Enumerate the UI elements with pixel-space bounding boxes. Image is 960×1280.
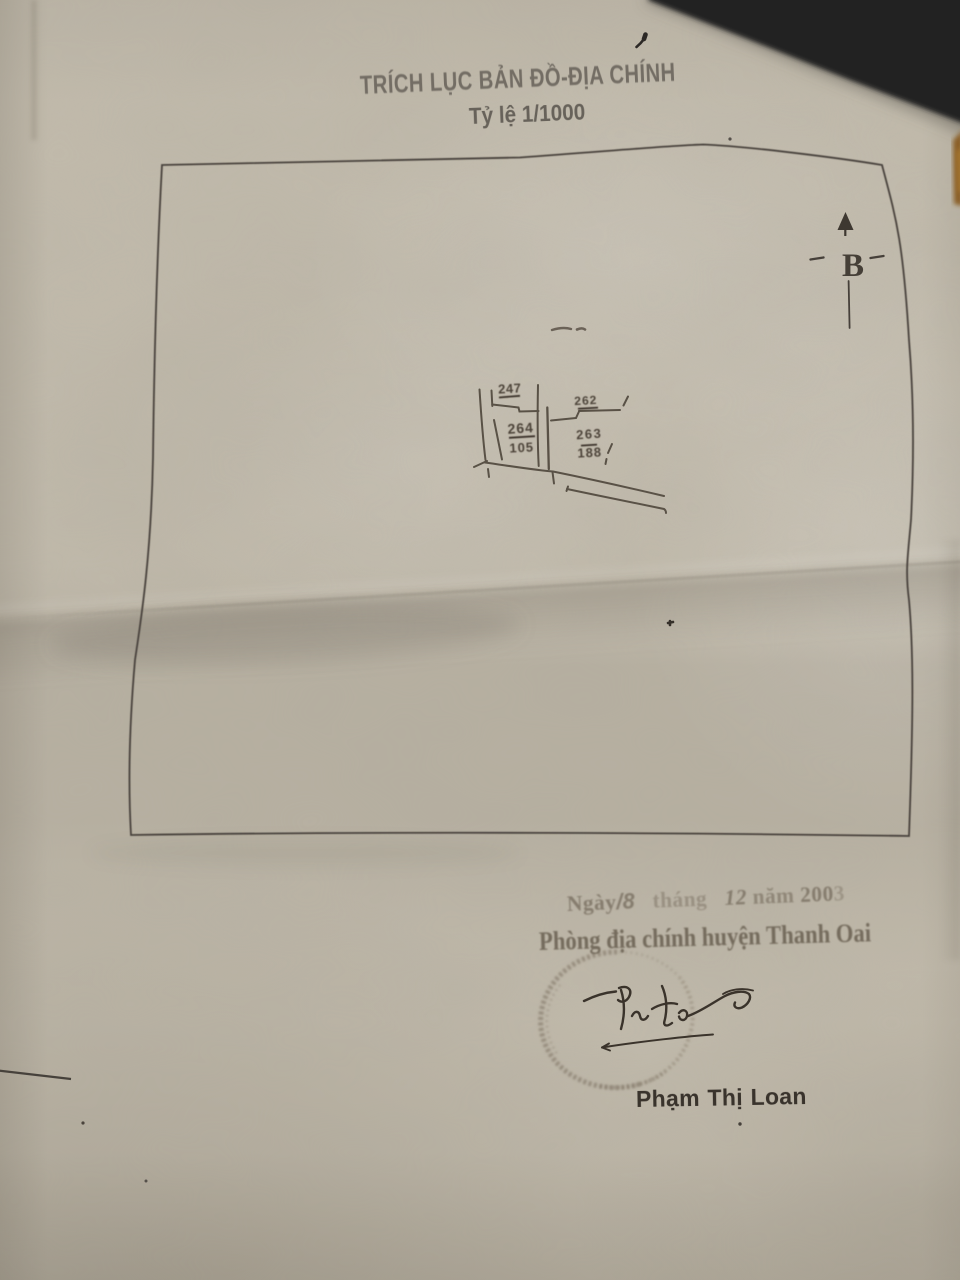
svg-text:264: 264 — [507, 419, 534, 437]
svg-text:262: 262 — [574, 393, 598, 408]
svg-text:B: B — [842, 248, 864, 284]
svg-text:263: 263 — [576, 426, 603, 443]
svg-text:105: 105 — [509, 439, 534, 455]
svg-text:247: 247 — [498, 380, 522, 396]
svg-text:188: 188 — [577, 444, 602, 460]
